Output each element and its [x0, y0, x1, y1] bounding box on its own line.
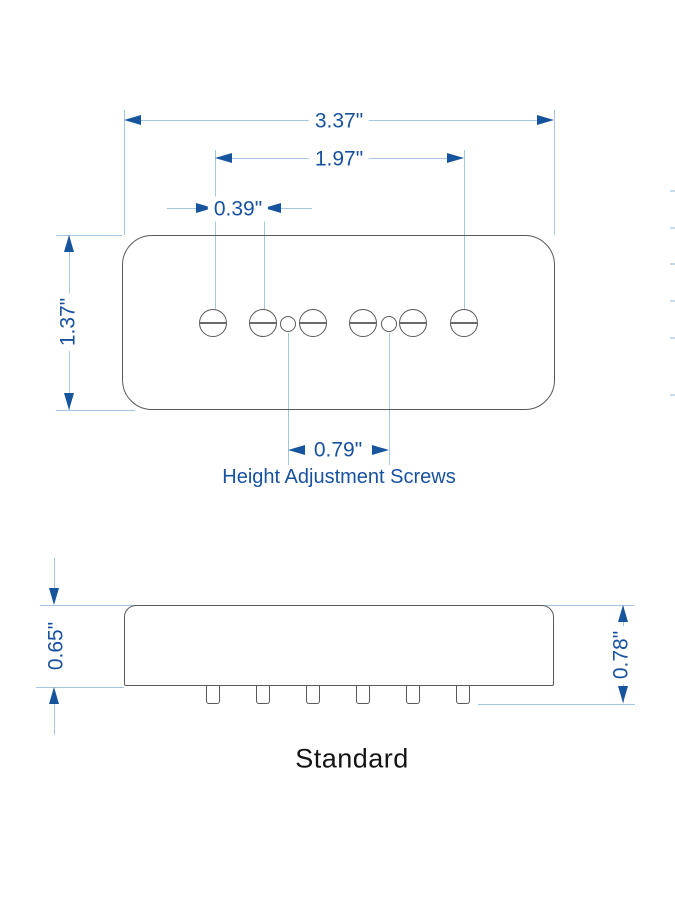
screw-slot: [299, 322, 327, 324]
pole-screw-3: [299, 309, 327, 337]
pickup-body-side-view: [124, 605, 554, 686]
arrow-down-icon: [64, 393, 74, 410]
pole-screw-2: [249, 309, 277, 337]
dim-overall-width-label: 3.37": [309, 109, 369, 134]
arrow-right-icon: [537, 115, 554, 125]
dimension-line-depth-upper: [54, 558, 55, 588]
screw-slot: [450, 322, 478, 324]
arrow-up-icon: [618, 605, 628, 622]
edge-artifact: [670, 394, 675, 396]
height-adjustment-screw-hole-right: [381, 316, 397, 332]
dim-screw-pitch-label: 0.39": [208, 197, 268, 222]
dimension-line-screw-pitch-right: [281, 208, 312, 209]
pole-screw-6: [450, 309, 478, 337]
arrow-right-icon: [447, 153, 464, 163]
pole-pin-4: [356, 686, 370, 704]
pole-screw-5: [399, 309, 427, 337]
screw-slot: [249, 322, 277, 324]
dimension-line-screw-pitch-left: [167, 208, 196, 209]
arrow-right-icon: [372, 445, 389, 455]
screw-slot: [349, 322, 377, 324]
arrow-left-icon: [124, 115, 141, 125]
edge-artifact: [670, 300, 675, 302]
edge-artifact: [670, 337, 675, 339]
arrow-left-icon: [215, 153, 232, 163]
dim-body-height-label: 1.37": [55, 293, 82, 351]
pole-screw-4: [349, 309, 377, 337]
arrow-up-icon: [64, 235, 74, 252]
dim-pole-span-label: 1.97": [309, 147, 369, 172]
arrow-up-icon: [49, 687, 59, 704]
diagram-title: Standard: [295, 746, 409, 773]
dim-total-depth-label: 0.78": [608, 626, 635, 684]
dim-adjust-span-label: 0.79": [308, 438, 368, 463]
dim-body-depth-label: 0.65": [43, 617, 70, 675]
pole-pin-1: [206, 686, 220, 704]
height-adjustment-screw-hole-left: [280, 316, 296, 332]
arrow-down-icon: [618, 686, 628, 703]
extension-line-side-bottom-right: [478, 704, 635, 705]
pole-pin-5: [406, 686, 420, 704]
edge-artifact: [670, 190, 675, 192]
pole-pin-2: [256, 686, 270, 704]
edge-artifact: [670, 263, 675, 265]
screw-slot: [399, 322, 427, 324]
pole-pin-6: [456, 686, 470, 704]
extension-line-overall-left: [124, 110, 125, 235]
height-adjustment-screws-caption: Height Adjustment Screws: [222, 467, 455, 487]
extension-line-body-bottom: [56, 410, 135, 411]
extension-line-overall-right: [554, 110, 555, 235]
pole-screw-1: [199, 309, 227, 337]
pickup-dimension-diagram: 3.37" 1.97" 0.39" 1.37" 0.79" Height Adj…: [0, 0, 675, 900]
pickup-body-top-view: [122, 235, 555, 410]
arrow-down-icon: [49, 588, 59, 605]
pole-pin-3: [306, 686, 320, 704]
dimension-line-depth-lower: [54, 704, 55, 735]
arrow-left-icon: [288, 445, 305, 455]
screw-slot: [199, 322, 227, 324]
edge-artifact: [670, 227, 675, 229]
